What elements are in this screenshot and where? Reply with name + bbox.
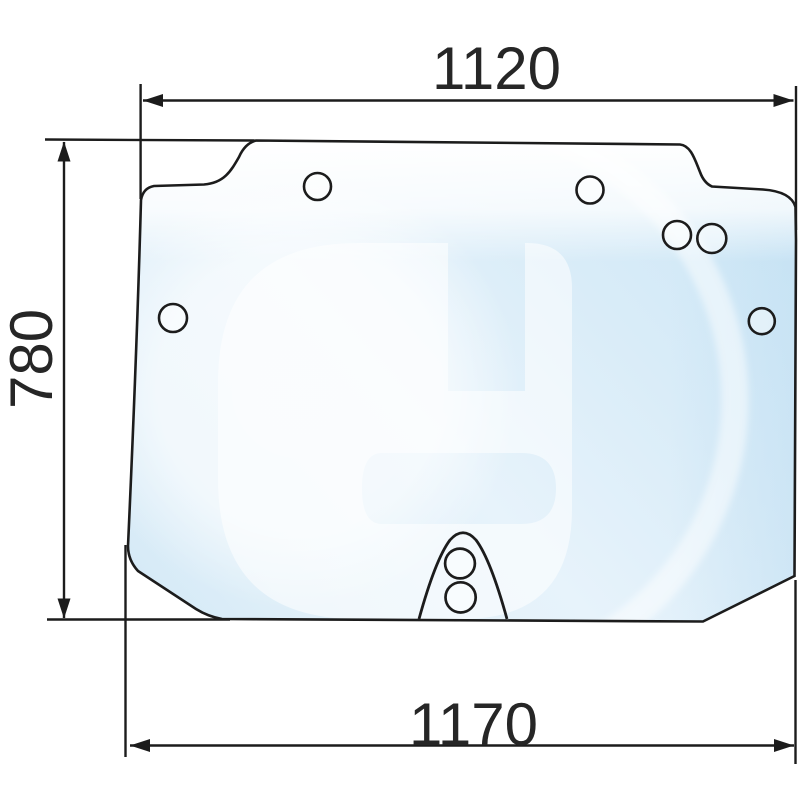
- svg-text:1170: 1170: [409, 691, 538, 758]
- svg-text:780: 780: [0, 309, 65, 409]
- svg-text:1120: 1120: [432, 35, 561, 102]
